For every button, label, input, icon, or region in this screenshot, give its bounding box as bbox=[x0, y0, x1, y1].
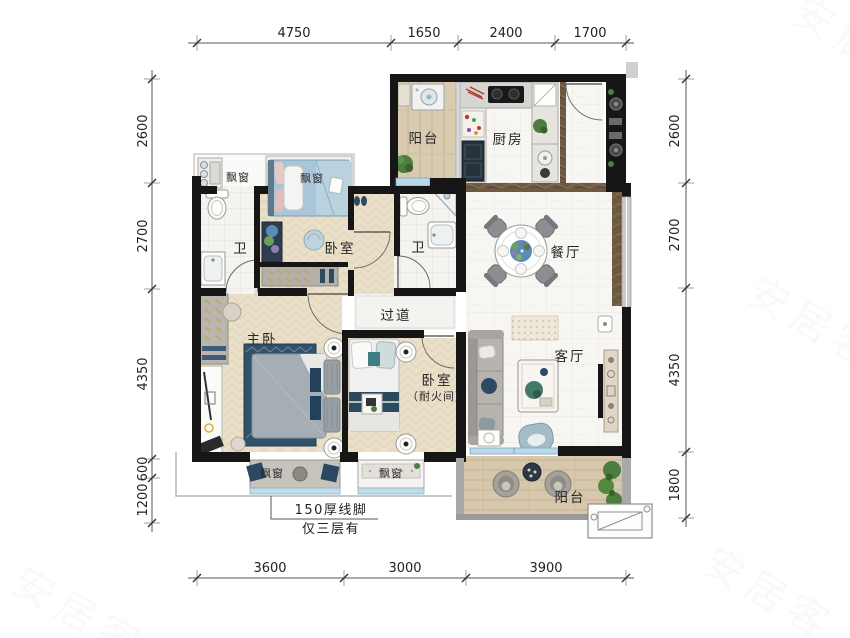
marble-border-right bbox=[612, 192, 622, 306]
label-bay-window-1: 飘窗 bbox=[226, 170, 250, 184]
pillow bbox=[478, 345, 496, 359]
slippers bbox=[354, 196, 360, 206]
dim-bottom-3: 3900 bbox=[529, 561, 562, 576]
label-bedroom3-line1: 卧室 bbox=[422, 372, 453, 389]
bottles bbox=[320, 269, 325, 283]
shelf bbox=[398, 84, 410, 106]
watermark-text: 安居客 bbox=[695, 539, 843, 638]
balcony-wall bbox=[456, 458, 464, 514]
stool bbox=[231, 437, 245, 451]
dim-right-3: 4350 bbox=[668, 353, 683, 386]
closet bbox=[262, 266, 338, 286]
dimension-top: 4750 1650 2400 1700 bbox=[188, 26, 634, 51]
entry-floor bbox=[566, 82, 604, 183]
pillow bbox=[481, 378, 497, 394]
wardrobe bbox=[200, 294, 228, 364]
side-table bbox=[478, 430, 500, 446]
floor-plan-image: 安居客 安居客 安居客 安居客 安居客 4750 1650 2400 1700 bbox=[0, 0, 850, 638]
label-living: 客厅 bbox=[555, 348, 586, 365]
sofa bbox=[468, 334, 477, 440]
label-bedroom3-line2: （耐火间） bbox=[407, 390, 467, 403]
label-bathroom2: 卫 bbox=[411, 240, 427, 256]
marble-border-top bbox=[460, 183, 610, 192]
ottoman bbox=[223, 303, 241, 321]
watermark-text: 安居客 bbox=[740, 269, 850, 381]
dim-bottom-1: 3600 bbox=[253, 561, 286, 576]
label-bay-window-3: 飘窗 bbox=[260, 466, 284, 480]
label-balcony-bottom: 阳台 bbox=[555, 490, 586, 506]
dim-left-5: 1200 bbox=[136, 483, 151, 516]
dimension-left: 2600 2700 4350 600 1200 bbox=[136, 70, 160, 532]
dim-top-3: 2400 bbox=[489, 26, 522, 41]
dim-bottom-2: 3000 bbox=[388, 561, 421, 576]
watermark-text: 安居客 bbox=[785, 0, 850, 101]
label-bathroom1: 卫 bbox=[233, 241, 249, 257]
vegetable-basket bbox=[462, 111, 484, 137]
label-kitchen: 厨房 bbox=[493, 132, 524, 148]
exterior-ledge bbox=[626, 62, 638, 78]
label-dining: 餐厅 bbox=[551, 245, 582, 261]
toilet bbox=[400, 197, 407, 216]
tv bbox=[598, 364, 603, 418]
label-master: 主卧 bbox=[247, 332, 278, 348]
label-bay-window-2: 飘窗 bbox=[300, 171, 324, 185]
watermark-text: 安居客 bbox=[5, 559, 153, 638]
label-bay-window-4: 飘窗 bbox=[379, 466, 403, 480]
dim-top-4: 1700 bbox=[573, 26, 606, 41]
dim-left-4: 600 bbox=[136, 457, 151, 482]
dim-left-1: 2600 bbox=[136, 114, 151, 147]
dim-left-3: 4350 bbox=[136, 357, 151, 390]
dim-left-2: 2700 bbox=[136, 219, 151, 252]
glass-partition bbox=[456, 82, 460, 180]
label-balcony-top: 阳台 bbox=[409, 131, 440, 147]
molding-note-line1: 150厚线脚 bbox=[295, 502, 368, 518]
dim-right-2: 2700 bbox=[668, 218, 683, 251]
entry-marble-strip bbox=[560, 82, 566, 183]
dimension-bottom: 3600 3000 3900 bbox=[188, 561, 634, 586]
dim-top-2: 1650 bbox=[407, 26, 440, 41]
ac-platform bbox=[588, 504, 652, 538]
stool bbox=[304, 230, 324, 250]
flowers bbox=[266, 225, 278, 237]
outdoor-table bbox=[523, 463, 541, 481]
dim-right-4: 1800 bbox=[668, 468, 683, 501]
molding-note-line2: 仅三层有 bbox=[302, 522, 360, 537]
label-bedroom2: 卧室 bbox=[325, 240, 356, 257]
label-corridor: 过道 bbox=[381, 308, 412, 324]
pillow bbox=[310, 368, 321, 392]
dim-top-1: 4750 bbox=[277, 26, 310, 41]
dim-right-1: 2600 bbox=[668, 114, 683, 147]
window bbox=[396, 178, 430, 186]
dimension-right: 2600 2700 4350 1800 bbox=[668, 70, 694, 527]
